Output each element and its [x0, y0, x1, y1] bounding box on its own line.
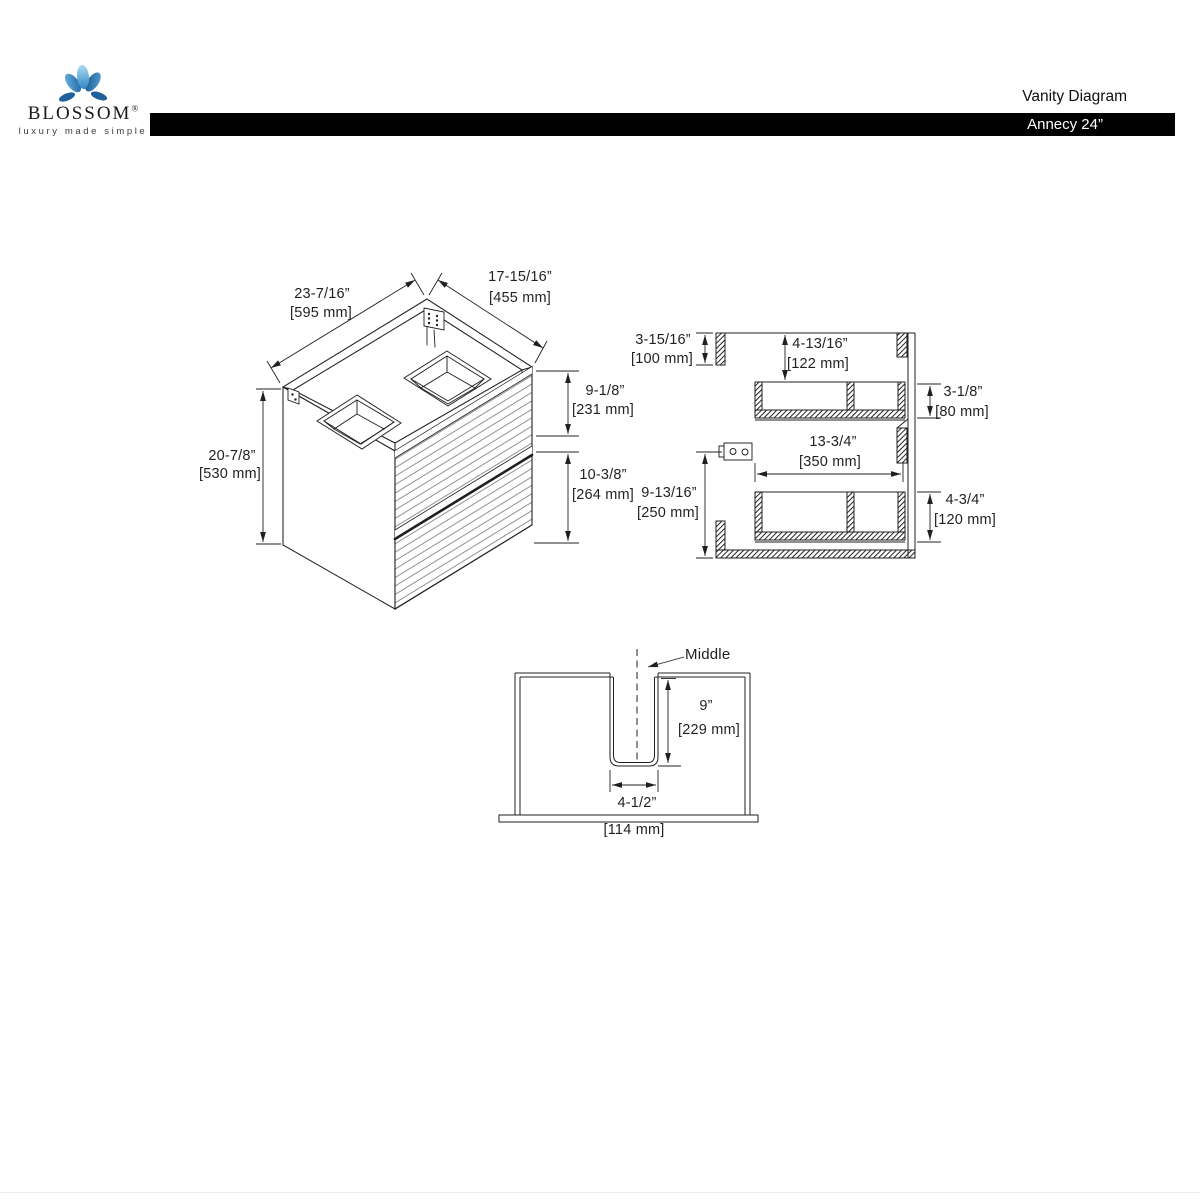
isometric-view [283, 299, 532, 609]
dim-label-sec-clearance-mm: [122 mm] [787, 357, 849, 372]
dim-label-cut-width-mm: [114 mm] [604, 823, 665, 838]
dim-label-iso-bottom-drawer-in: 10-3/8” [579, 468, 626, 483]
dim-label-sec-width-mm: [350 mm] [799, 455, 861, 470]
dim-label-sec-width-in: 13-3/4” [809, 435, 856, 450]
dim-label-sec-lower-section-mm: [250 mm] [637, 506, 699, 521]
dim-label-sec-lower-drawer-mm: [120 mm] [934, 513, 996, 528]
dim-label-iso-height-mm: [530 mm] [199, 467, 261, 482]
dim-label-cut-depth-in: 9” [699, 699, 712, 714]
dim-label-iso-top-drawer-mm: [231 mm] [572, 403, 634, 418]
dim-label-iso-height-in: 20-7/8” [208, 449, 255, 464]
cutout-middle-label: Middle [685, 647, 730, 662]
cutout-dimensions [610, 679, 681, 793]
dim-label-iso-width-mm: [595 mm] [290, 306, 352, 321]
dim-label-sec-backrail-mm: [100 mm] [631, 352, 693, 367]
section-wall-bracket [719, 443, 752, 460]
dim-label-sec-lower-drawer-in: 4-3/4” [945, 493, 984, 508]
spec-sheet-page: BLOSSOM® luxury made simple Vanity Diagr… [0, 0, 1200, 1200]
section-lower-drawer [755, 492, 905, 542]
dim-label-sec-lower-section-in: 9-13/16” [641, 486, 697, 501]
dim-label-iso-bottom-drawer-mm: [264 mm] [572, 488, 634, 503]
dim-label-sec-clearance-in: 4-13/16” [792, 337, 848, 352]
dim-label-cut-depth-mm: [229 mm] [678, 723, 740, 738]
dim-label-iso-depth-mm: [455 mm] [489, 291, 551, 306]
dim-sec-backrail [696, 333, 713, 365]
vanity-technical-drawing [0, 0, 1200, 1200]
dim-cut-width [610, 770, 658, 792]
dim-label-iso-depth-in: 17-15/16” [488, 270, 552, 285]
dim-label-iso-top-drawer-in: 9-1/8” [585, 384, 624, 399]
dim-label-iso-width-in: 23-7/16” [294, 287, 350, 302]
section-upper-drawer [755, 382, 905, 420]
page-bottom-rule [0, 1192, 1200, 1193]
middle-leader-line [648, 657, 684, 667]
dim-label-sec-backrail-in: 3-15/16” [635, 333, 691, 348]
dim-label-sec-upper-drawer-in: 3-1/8” [943, 385, 982, 400]
dim-label-cut-width-in: 4-1/2” [617, 796, 656, 811]
dim-label-sec-upper-drawer-mm: [80 mm] [935, 405, 989, 420]
